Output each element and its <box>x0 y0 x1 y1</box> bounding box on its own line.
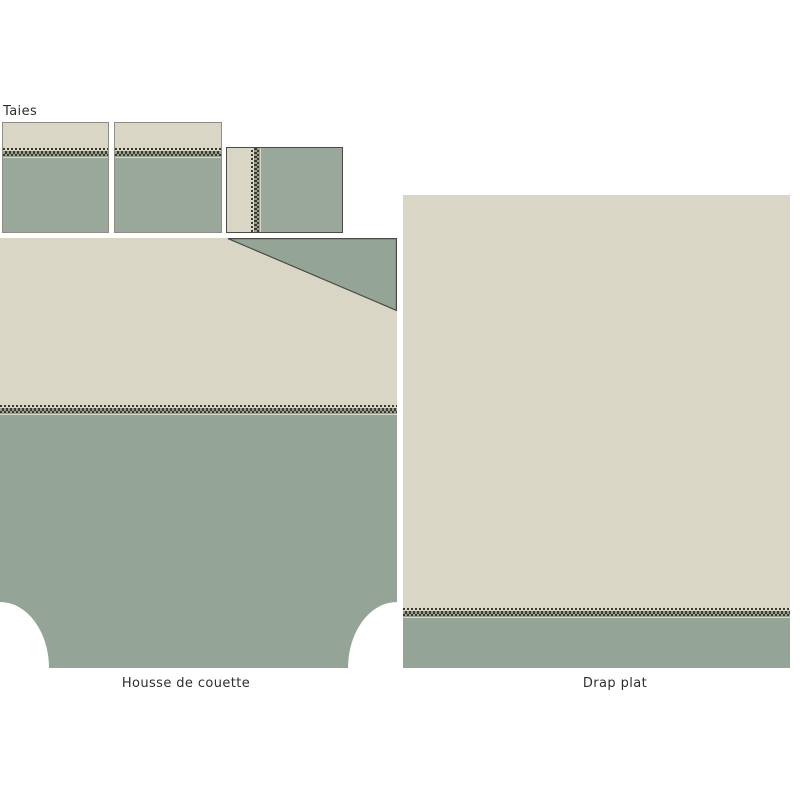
pillowcase-3-side-view <box>226 147 343 233</box>
pillowcase-3-hem <box>227 148 250 232</box>
pillowcase-3-stitch-band <box>250 148 261 232</box>
duvet-corner-notch-left <box>0 602 49 668</box>
pillowcase-1-hem <box>3 123 108 147</box>
folded-corner-shape <box>227 238 397 311</box>
duvet-cover-bottom-panel <box>0 415 397 668</box>
pillowcase-2-body <box>115 158 221 232</box>
flat-sheet <box>403 195 790 668</box>
pillowcase-3-body <box>261 148 342 232</box>
pillowcase-1 <box>2 122 109 233</box>
bed-linen-diagram: Taies Housse de coue <box>0 0 800 800</box>
duvet-cover <box>0 238 397 668</box>
pillowcase-2 <box>114 122 222 233</box>
duvet-cover-stitch-band <box>0 404 397 415</box>
duvet-cover-label: Housse de couette <box>122 676 250 691</box>
flat-sheet-stitch-band <box>403 607 790 618</box>
pillowcase-1-body <box>3 158 108 232</box>
flat-sheet-label: Drap plat <box>583 676 647 691</box>
duvet-folded-corner <box>227 238 397 311</box>
pillowcase-2-stitch-band <box>115 147 221 158</box>
duvet-corner-notch-right <box>348 602 397 668</box>
flat-sheet-body <box>403 195 790 607</box>
flat-sheet-hem <box>403 618 790 668</box>
pillowcase-2-hem <box>115 123 221 147</box>
pillowcase-1-stitch-band <box>3 147 108 158</box>
pillowcases-label: Taies <box>3 104 37 119</box>
